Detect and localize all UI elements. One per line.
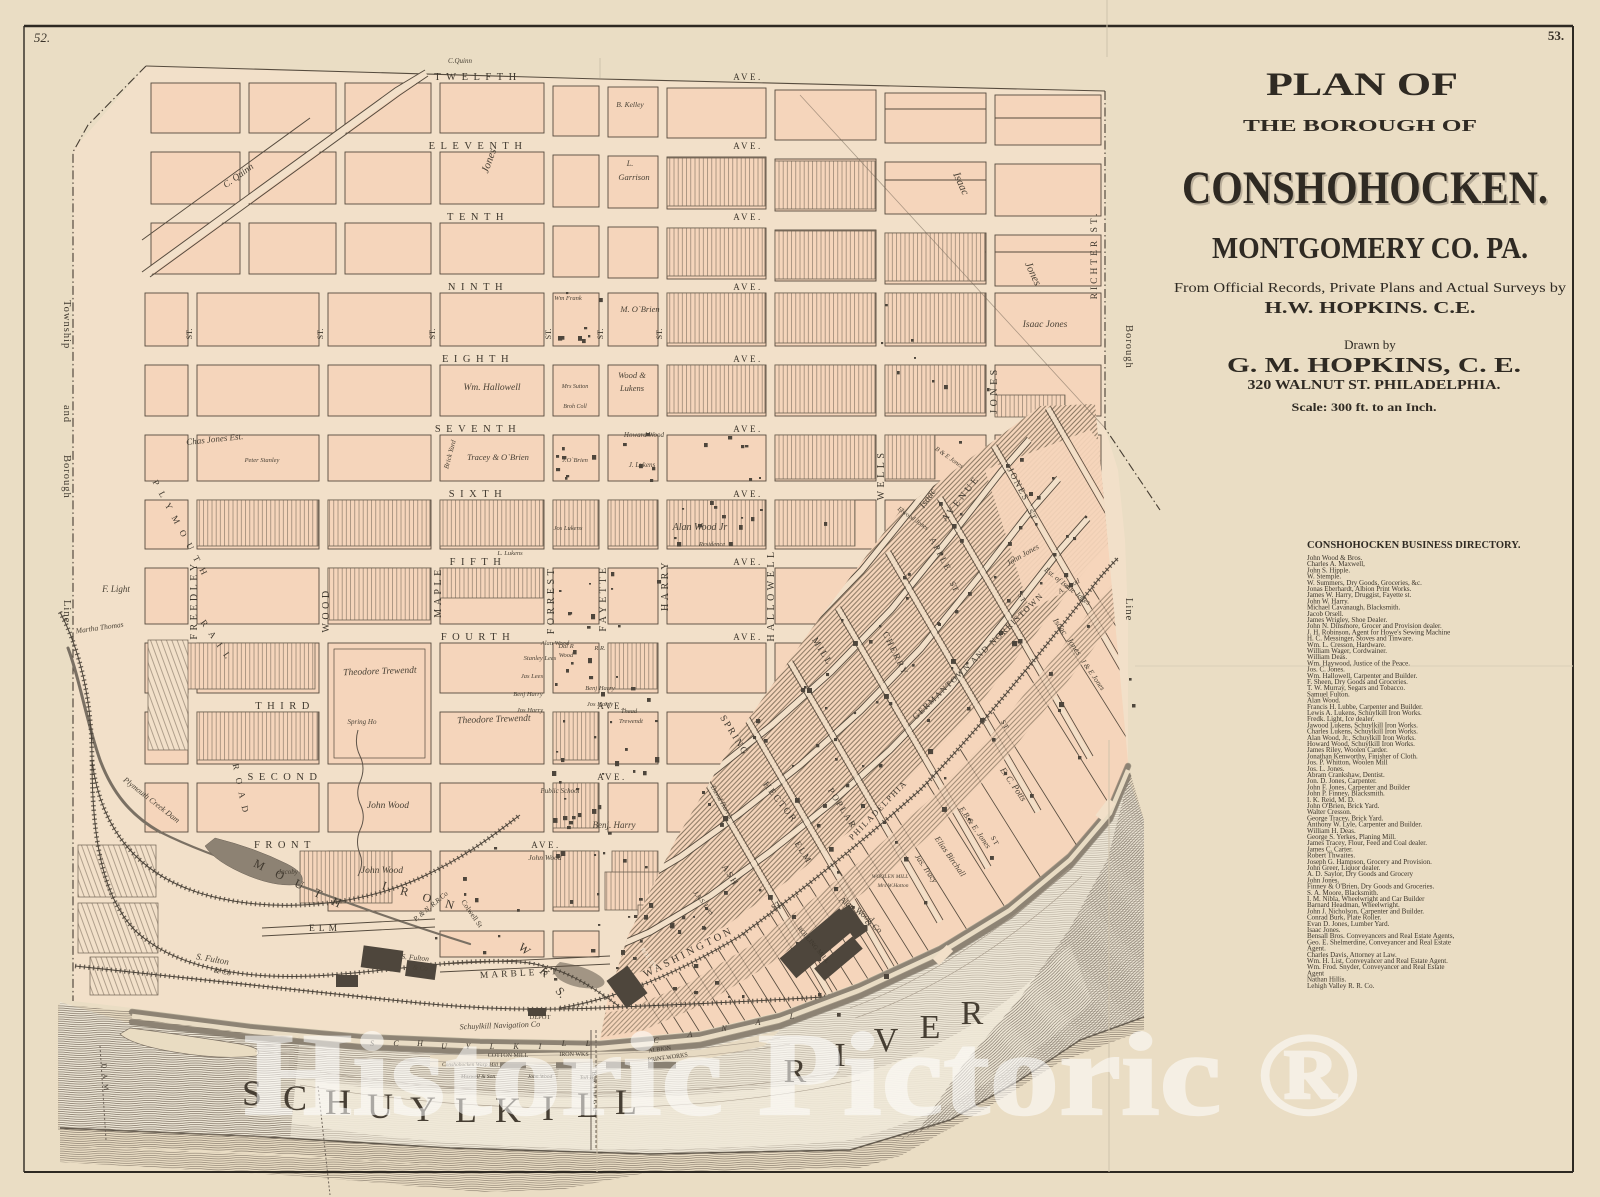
svg-text:Jas Lees: Jas Lees [521,673,544,680]
svg-text:FRONT: FRONT [254,840,316,851]
svg-text:WOOD: WOOD [321,587,332,632]
svg-text:& Co: & Co [412,963,429,972]
svg-text:Trewendt: Trewendt [619,718,643,725]
svg-text:JONES: JONES [989,366,1000,414]
svg-text:Wood &: Wood & [618,370,646,380]
svg-text:ELM: ELM [309,924,341,934]
svg-text:AVE.: AVE. [733,141,763,151]
svg-text:Public School: Public School [539,787,579,795]
svg-text:ST.: ST. [596,329,605,340]
svg-text:Geo. E. Shelmerdine, Conveyanc: Geo. E. Shelmerdine, Conveyancer and Rea… [1307,938,1451,946]
svg-text:Howard Wood: Howard Wood [623,431,665,439]
svg-text:AVE.: AVE. [597,772,627,782]
svg-text:MONTGOMERY CO. PA.: MONTGOMERY CO. PA. [1212,230,1528,265]
svg-text:FOURTH: FOURTH [441,632,515,643]
svg-text:AVE.: AVE. [733,354,763,364]
svg-text:Line: Line [1123,598,1134,621]
svg-text:Broh Coll: Broh Coll [563,404,587,410]
svg-text:J. Lukens: J. Lukens [629,461,656,469]
svg-text:FIFTH: FIFTH [450,557,507,568]
svg-text:Scale: 300 ft. to an Inch.: Scale: 300 ft. to an Inch. [1292,402,1437,414]
svg-text:Thead: Thead [621,708,638,715]
svg-text:Garrison: Garrison [618,172,649,182]
svg-text:Lukens: Lukens [619,383,645,393]
svg-text:F. Light: F. Light [101,584,130,594]
svg-text:L.: L. [626,159,633,168]
svg-text:PLAN OF: PLAN OF [1266,67,1458,103]
svg-text:THE BOROUGH OF: THE BOROUGH OF [1243,116,1477,135]
svg-text:and: and [61,405,72,423]
svg-text:H.W. HOPKINS. C.E.: H.W. HOPKINS. C.E. [1265,298,1476,317]
svg-text:John Wood: John Wood [528,853,562,862]
svg-text:RICHTER ST.: RICHTER ST. [1090,211,1100,300]
svg-text:Residence: Residence [698,541,725,548]
svg-text:CONSHOHOCKEN.: CONSHOHOCKEN. [1182,162,1548,214]
svg-text:WOOLEN MILL: WOOLEN MILL [872,874,909,880]
svg-text:AVE.: AVE. [733,212,763,222]
svg-text:C.Quinn: C.Quinn [448,57,472,65]
svg-text:AVE.: AVE. [733,557,763,567]
svg-text:AVE.: AVE. [733,72,763,82]
svg-text:MAPLE: MAPLE [433,566,444,617]
svg-text:HARRY: HARRY [660,559,671,611]
svg-text:FORREST: FORREST [546,566,557,634]
svg-text:Jos Lukens: Jos Lukens [554,525,583,532]
svg-text:Stanley Lees: Stanley Lees [524,655,557,662]
svg-text:SECOND: SECOND [247,772,322,783]
svg-text:From Official Records, Private: From Official Records, Private Plans and… [1174,280,1566,295]
svg-text:M. O`Brien: M. O`Brien [619,304,659,314]
svg-text:Peter Stanley: Peter Stanley [244,457,280,464]
svg-text:EIGHTH: EIGHTH [442,354,514,365]
svg-text:Mrs Sutton: Mrs Sutton [561,384,589,390]
svg-text:Borough: Borough [61,455,72,499]
svg-text:Borough: Borough [1123,325,1134,369]
svg-text:Benj Harry: Benj Harry [585,685,615,692]
svg-text:AVE.: AVE. [733,282,763,292]
svg-text:ELEVENTH: ELEVENTH [429,141,528,152]
svg-text:John Wood: John Wood [361,866,403,876]
svg-text:TENTH: TENTH [447,212,509,223]
svg-text:Wm. Hallowell: Wm. Hallowell [464,383,521,393]
svg-text:ST.: ST. [185,329,194,340]
svg-text:Dal R: Dal R [557,643,573,650]
svg-text:HALLOWELL: HALLOWELL [766,548,777,641]
svg-text:WELLS: WELLS [876,450,887,501]
svg-text:G. M. HOPKINS, C. E.: G. M. HOPKINS, C. E. [1227,353,1521,377]
svg-text:Jos Harry: Jos Harry [517,707,543,714]
svg-text:L. Lukens: L. Lukens [496,550,523,557]
svg-text:53.: 53. [1548,28,1564,43]
svg-text:AVE.: AVE. [733,489,763,499]
svg-text:Spring Ho: Spring Ho [348,718,377,726]
svg-text:Tracey & O`Brien: Tracey & O`Brien [467,452,529,462]
svg-text:THIRD: THIRD [255,701,315,712]
svg-text:Line: Line [61,600,72,623]
svg-text:ST.: ST. [655,329,664,340]
svg-text:Township: Township [61,300,72,349]
svg-text:Benj Harry: Benj Harry [513,691,543,698]
svg-text:AVE.: AVE. [531,840,561,850]
svg-text:Drawn by: Drawn by [1344,337,1396,352]
svg-text:John Wood: John Wood [367,801,409,811]
svg-text:ST.: ST. [316,329,325,340]
svg-text:R.R.: R.R. [593,645,606,652]
svg-text:SIXTH: SIXTH [449,489,507,500]
svg-text:Benj. Harry: Benj. Harry [593,820,636,830]
svg-text:FAYETTE: FAYETTE [598,564,609,631]
svg-text:Lehigh Valley R. R. Co.: Lehigh Valley R. R. Co. [1307,982,1375,990]
svg-text:Mrs W.Hatton: Mrs W.Hatton [877,883,909,889]
svg-text:Historic Pictoric ®: Historic Pictoric ® [244,1009,1360,1140]
svg-text:ST.: ST. [428,329,437,340]
svg-text:Alan Wood Jr: Alan Wood Jr [672,522,728,533]
svg-text:Isaac Jones: Isaac Jones [1022,320,1068,330]
svg-text:52.: 52. [34,30,50,45]
svg-text:ST.: ST. [544,329,553,340]
svg-text:Wood: Wood [559,652,574,659]
svg-text:B. Kelley: B. Kelley [616,100,644,109]
svg-text:Jos Harry: Jos Harry [587,701,613,708]
svg-text:AVE.: AVE. [733,424,763,434]
svg-text:320 WALNUT ST. PHILADELPHIA.: 320 WALNUT ST. PHILADELPHIA. [1248,377,1501,392]
svg-text:Wm. Frod. Snyder, Conveyancer: Wm. Frod. Snyder, Conveyancer and Real E… [1307,963,1445,971]
svg-text:AVE.: AVE. [733,632,763,642]
svg-text:NINTH: NINTH [448,282,508,293]
svg-text:CONSHOHOCKEN BUSINESS DIRECTOR: CONSHOHOCKEN BUSINESS DIRECTORY. [1307,540,1521,551]
svg-text:TWELFTH: TWELFTH [434,72,522,83]
svg-text:J.O`Brien: J.O`Brien [562,457,588,464]
svg-text:Wm Frank: Wm Frank [554,295,582,302]
svg-text:SEVENTH: SEVENTH [435,424,521,435]
